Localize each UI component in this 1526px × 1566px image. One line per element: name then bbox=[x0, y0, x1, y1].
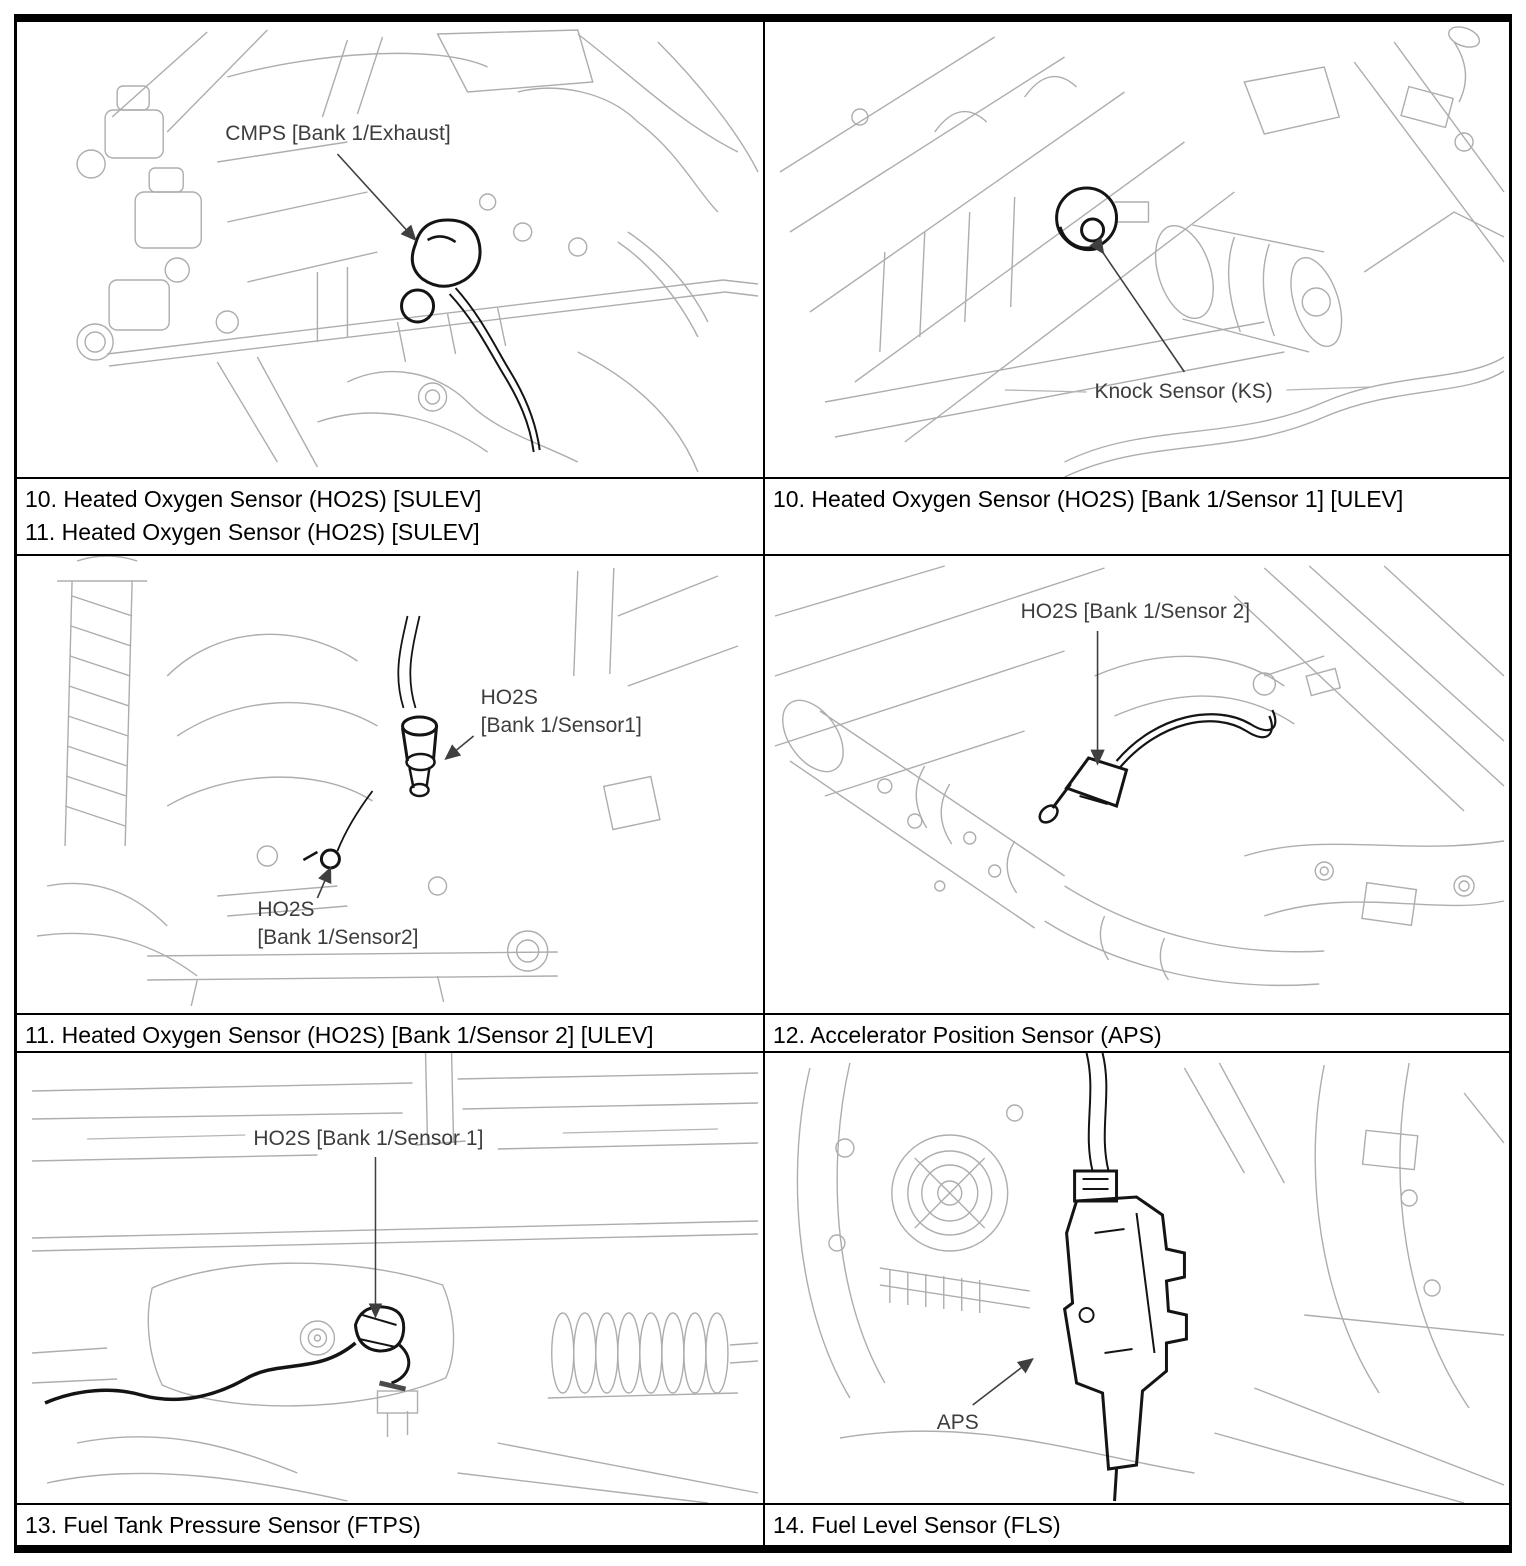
leader-arrow-ho2s-sensor1 bbox=[446, 736, 474, 759]
engine-diagram-knock-sensor: Knock Sensor (KS) bbox=[765, 22, 1509, 477]
ho2s-sensors-highlight bbox=[303, 616, 436, 868]
label-dash-left bbox=[1005, 390, 1087, 392]
caption-cell-ho2s-sulev: 10. Heated Oxygen Sensor (HO2S) [SULEV] … bbox=[17, 477, 763, 556]
figure-cell-ho2s-underbody: HO2S [Bank 1/Sensor 1] bbox=[17, 1053, 763, 1503]
figure-label-ho2s-sensor1-line1: HO2S bbox=[481, 686, 538, 709]
engine-line-art bbox=[780, 23, 1504, 477]
figure-cell-ho2s-engine: HO2S [Bank 1/Sensor1] HO2S [Bank 1/Senso… bbox=[17, 556, 763, 1013]
knock-sensor-highlight bbox=[1057, 188, 1117, 249]
ho2s-underbody-highlight bbox=[45, 1307, 409, 1403]
figure-label-ho2s-sensor1-line2: [Bank 1/Sensor1] bbox=[481, 714, 642, 737]
label-dash-right bbox=[563, 1129, 718, 1133]
caption-cell-ho2s-ulev-s1: 10. Heated Oxygen Sensor (HO2S) [Bank 1/… bbox=[763, 477, 1509, 556]
figure-cell-knock-sensor: Knock Sensor (KS) bbox=[763, 22, 1509, 477]
caption-line: 14. Fuel Level Sensor (FLS) bbox=[773, 1509, 1501, 1542]
figure-cell-ho2s-catalyst: HO2S [Bank 1/Sensor 2] bbox=[763, 556, 1509, 1013]
underbody-diagram-ho2s: HO2S [Bank 1/Sensor 1] bbox=[17, 1053, 763, 1503]
caption-cell-aps: 12. Accelerator Position Sensor (APS) bbox=[763, 1013, 1509, 1053]
sensor-location-table: CMPS [Bank 1/Exhaust] bbox=[14, 14, 1512, 1553]
caption-cell-ftps: 13. Fuel Tank Pressure Sensor (FTPS) bbox=[17, 1503, 763, 1545]
underbody-line-art bbox=[32, 1053, 758, 1503]
pedal-diagram-aps: APS bbox=[765, 1053, 1509, 1503]
figure-label-ho2s-sensor2-line1: HO2S bbox=[257, 898, 314, 921]
caption-line: 11. Heated Oxygen Sensor (HO2S) [SULEV] bbox=[25, 516, 755, 549]
caption-cell-fls: 14. Fuel Level Sensor (FLS) bbox=[763, 1503, 1509, 1545]
caption-cell-ho2s-ulev-s2: 11. Heated Oxygen Sensor (HO2S) [Bank 1/… bbox=[17, 1013, 763, 1053]
label-dash-left bbox=[87, 1135, 245, 1139]
caption-line: 10. Heated Oxygen Sensor (HO2S) [Bank 1/… bbox=[773, 483, 1501, 516]
engine-diagram-cmps: CMPS [Bank 1/Exhaust] bbox=[17, 22, 763, 477]
caption-line: 12. Accelerator Position Sensor (APS) bbox=[773, 1019, 1501, 1052]
engine-diagram-ho2s-catalyst: HO2S [Bank 1/Sensor 2] bbox=[765, 556, 1509, 1013]
figure-cell-aps-pedal: APS bbox=[763, 1053, 1509, 1503]
figure-label-ho2s-underbody: HO2S [Bank 1/Sensor 1] bbox=[253, 1127, 483, 1150]
engine-line-art bbox=[770, 566, 1504, 985]
leader-arrow-cmps bbox=[337, 154, 415, 240]
figure-cell-cmps: CMPS [Bank 1/Exhaust] bbox=[17, 22, 763, 477]
engine-line-art bbox=[77, 30, 758, 472]
cmps-sensor-highlight bbox=[402, 220, 540, 452]
pedal-line-art bbox=[797, 1063, 1504, 1503]
leader-arrow-knock-sensor bbox=[1103, 252, 1185, 372]
caption-line: 13. Fuel Tank Pressure Sensor (FTPS) bbox=[25, 1509, 755, 1542]
label-dash-right bbox=[1286, 387, 1370, 390]
caption-line: 11. Heated Oxygen Sensor (HO2S) [Bank 1/… bbox=[25, 1019, 755, 1052]
figure-label-ho2s-sensor2-line2: [Bank 1/Sensor2] bbox=[257, 926, 418, 949]
aps-pedal-highlight bbox=[1065, 1053, 1187, 1501]
caption-line: 10. Heated Oxygen Sensor (HO2S) [SULEV] bbox=[25, 483, 755, 516]
engine-diagram-ho2s-sensors: HO2S [Bank 1/Sensor1] HO2S [Bank 1/Senso… bbox=[17, 556, 763, 1013]
leader-arrow-aps bbox=[973, 1359, 1033, 1405]
figure-label-cmps: CMPS [Bank 1/Exhaust] bbox=[225, 122, 450, 145]
leader-arrow-ho2s-sensor2 bbox=[317, 868, 330, 898]
service-manual-page: CMPS [Bank 1/Exhaust] bbox=[0, 0, 1526, 1566]
ho2s-catalyst-highlight bbox=[1036, 710, 1275, 826]
figure-label-ho2s-catalyst: HO2S [Bank 1/Sensor 2] bbox=[1021, 600, 1250, 623]
figure-label-knock-sensor: Knock Sensor (KS) bbox=[1095, 380, 1273, 403]
figure-label-aps: APS bbox=[937, 1411, 979, 1434]
